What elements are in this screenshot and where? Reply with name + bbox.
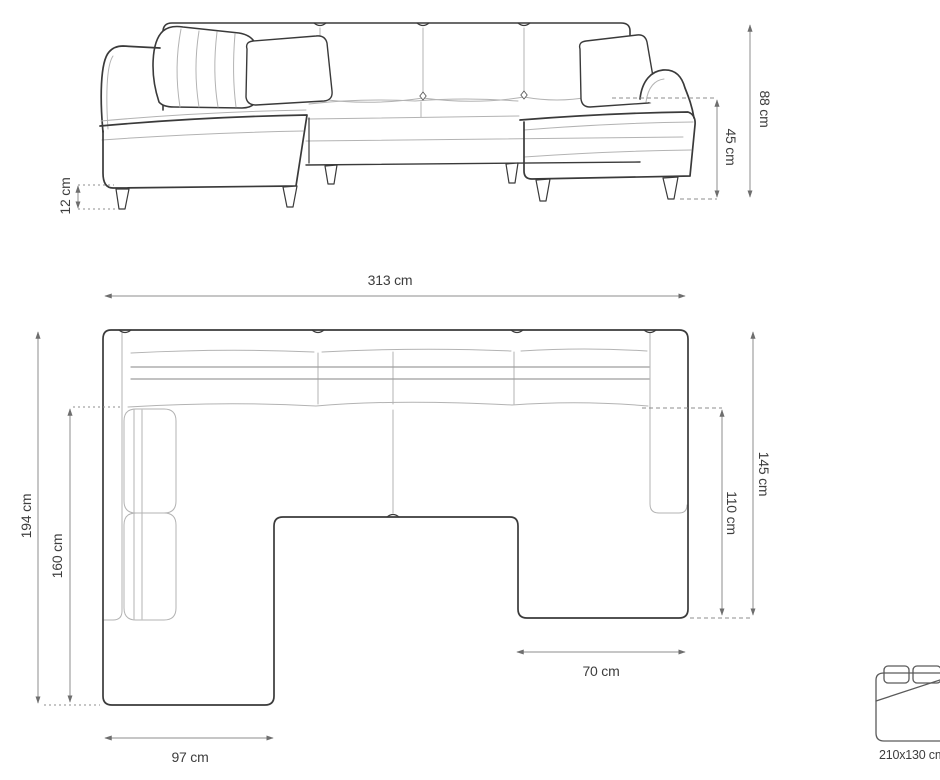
dim-left-depth-label: 194 cm [19,494,33,539]
dim-right-depth-label: 145 cm [757,452,771,497]
dim-left-inner-depth-label: 160 cm [50,534,64,579]
top-view-drawing [103,330,688,705]
sofa-bed-icon [876,666,940,741]
dim-overall-height-label: 88 cm [758,90,772,127]
dim-overall-width-label: 313 cm [368,273,413,287]
dim-left-chaise-width-label: 97 cm [171,750,208,764]
dim-leg-height-label: 12 cm [58,177,72,214]
sofa-dimension-diagram: 12 cm 45 cm 88 cm 313 cm 194 cm 160 cm 1… [0,0,940,780]
dimension-lines [38,25,753,738]
bed-fold-line [876,680,940,701]
bed-pillow-left-icon [884,666,909,683]
dim-right-inner-depth-label: 110 cm [725,491,739,535]
bed-pillow-right-icon [913,666,940,683]
front-view-drawing [100,23,695,209]
sleeping-size-label: 210x130 cm [879,749,940,762]
diagram-canvas [0,0,940,780]
dim-seat-height-label: 45 cm [724,128,738,165]
dim-right-chaise-width-label: 70 cm [582,664,619,678]
